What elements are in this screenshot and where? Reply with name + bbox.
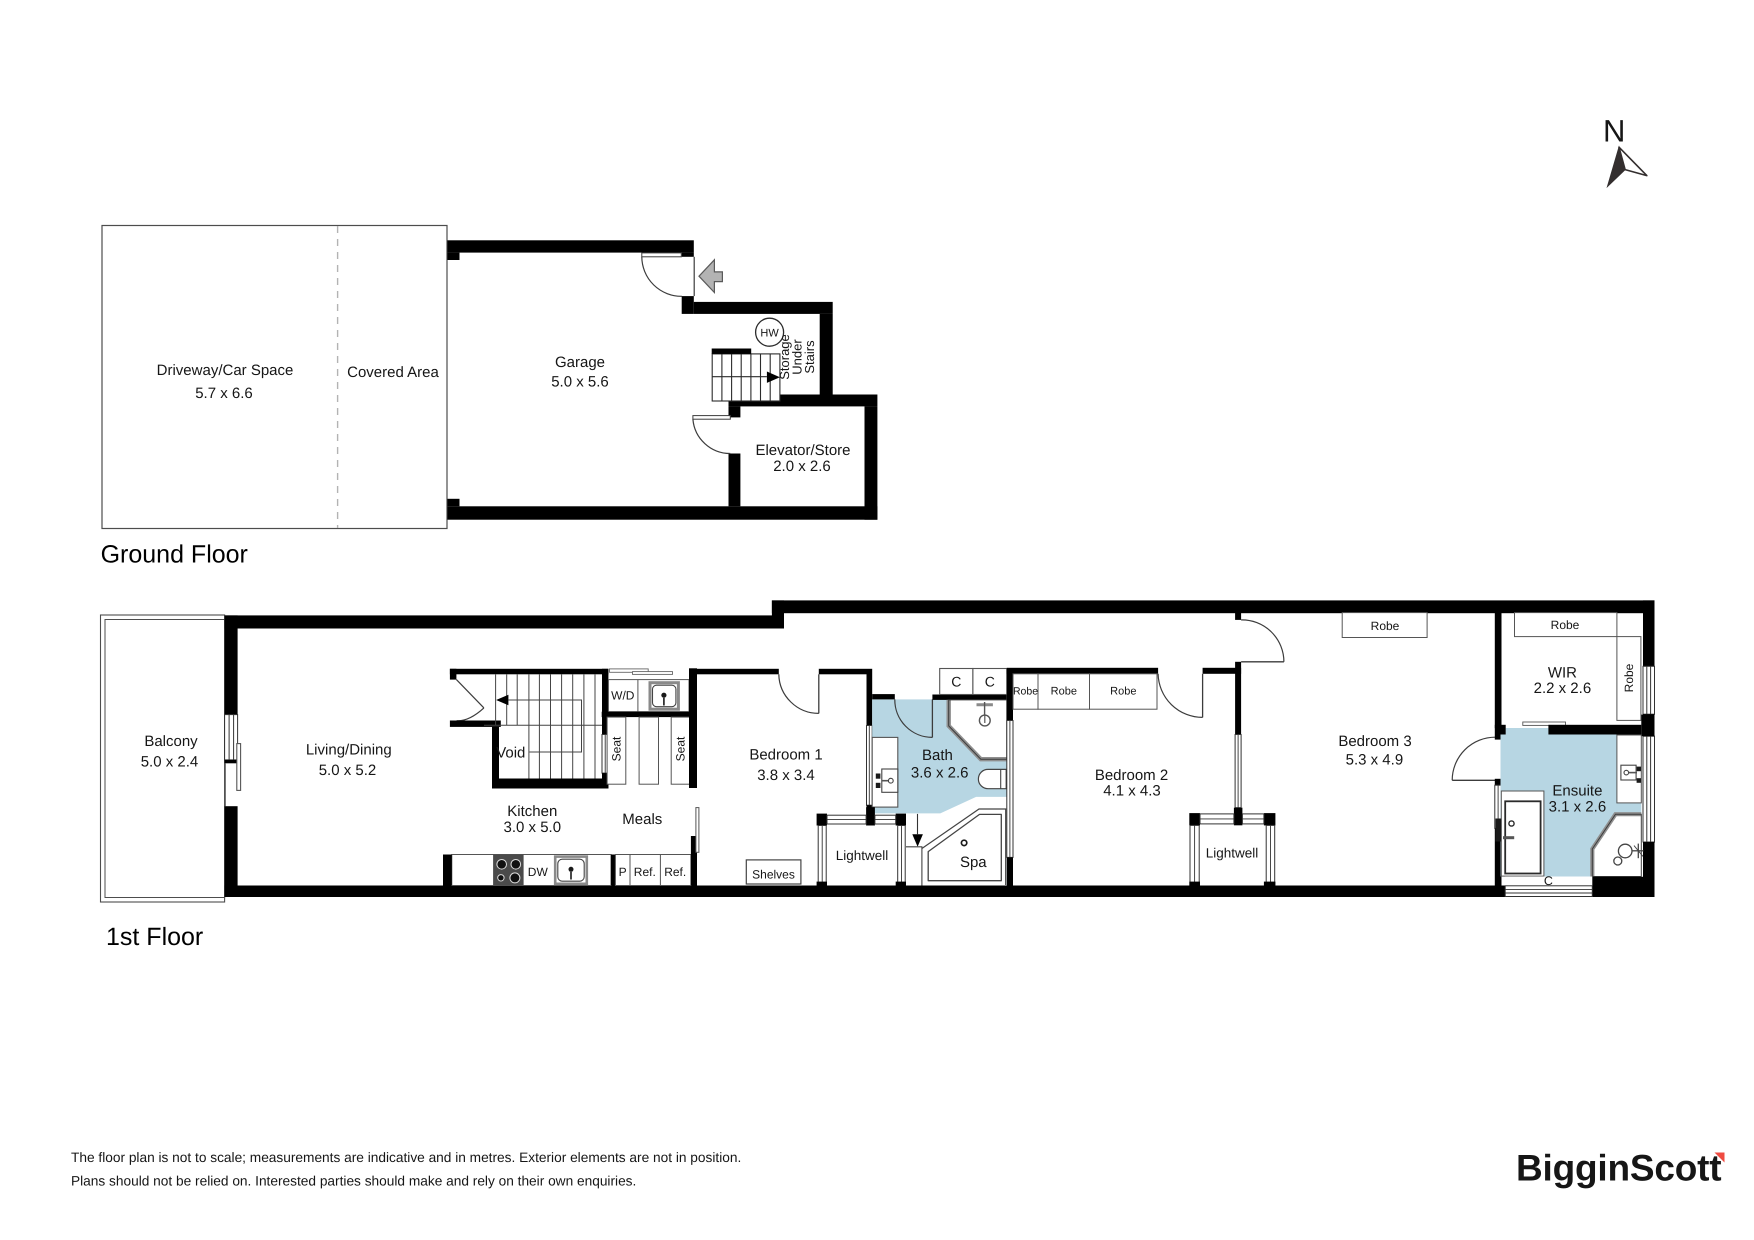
- svg-text:Driveway/Car Space: Driveway/Car Space: [157, 362, 294, 379]
- svg-text:Kitchen: Kitchen: [507, 803, 557, 820]
- svg-text:4.1 x 4.3: 4.1 x 4.3: [1103, 783, 1161, 800]
- svg-text:Robe: Robe: [1622, 663, 1636, 692]
- svg-text:Living/Dining: Living/Dining: [306, 742, 392, 759]
- svg-text:3.6 x 2.6: 3.6 x 2.6: [911, 764, 969, 781]
- svg-text:5.3 x 4.9: 5.3 x 4.9: [1346, 752, 1404, 769]
- svg-text:The floor plan is not to scale: The floor plan is not to scale; measurem…: [71, 1150, 741, 1165]
- svg-text:5.0 x 5.6: 5.0 x 5.6: [551, 374, 609, 391]
- svg-text:Lightwell: Lightwell: [1206, 846, 1259, 861]
- svg-text:Ground Floor: Ground Floor: [101, 541, 248, 569]
- svg-text:W/D: W/D: [611, 688, 635, 702]
- svg-text:Bath: Bath: [922, 747, 953, 764]
- svg-text:DW: DW: [528, 865, 549, 879]
- svg-text:N: N: [1603, 114, 1625, 149]
- svg-text:Meals: Meals: [622, 811, 662, 828]
- svg-text:Elevator/Store: Elevator/Store: [755, 442, 850, 459]
- svg-text:Seat: Seat: [610, 736, 624, 761]
- svg-text:Robe: Robe: [1551, 618, 1580, 632]
- svg-text:Robe: Robe: [1371, 619, 1400, 633]
- svg-text:2.0 x 2.6: 2.0 x 2.6: [773, 458, 831, 475]
- svg-text:5.0 x 5.2: 5.0 x 5.2: [319, 762, 377, 779]
- svg-text:Robe: Robe: [1051, 686, 1077, 698]
- svg-text:Spa: Spa: [960, 854, 987, 871]
- svg-text:Robe: Robe: [1110, 686, 1136, 698]
- svg-text:3.1 x 2.6: 3.1 x 2.6: [1549, 799, 1607, 816]
- svg-text:3.8 x 3.4: 3.8 x 3.4: [757, 767, 815, 784]
- svg-text:Robe: Robe: [1013, 686, 1038, 698]
- svg-text:Void: Void: [496, 745, 525, 762]
- svg-text:Seat: Seat: [674, 736, 688, 761]
- svg-text:Stairs: Stairs: [802, 340, 817, 374]
- svg-text:Balcony: Balcony: [144, 733, 198, 750]
- svg-text:C: C: [951, 673, 961, 689]
- svg-text:Ref.: Ref.: [664, 865, 686, 879]
- svg-text:C: C: [985, 673, 995, 689]
- svg-text:Covered Area: Covered Area: [347, 364, 439, 381]
- svg-text:5.0 x 2.4: 5.0 x 2.4: [141, 754, 199, 771]
- svg-text:Bedroom 2: Bedroom 2: [1095, 767, 1168, 784]
- svg-text:2.2 x 2.6: 2.2 x 2.6: [1534, 680, 1592, 697]
- svg-text:Lightwell: Lightwell: [836, 848, 889, 863]
- svg-text:Plans should not be relied on.: Plans should not be relied on. Intereste…: [71, 1174, 636, 1189]
- svg-text:Garage: Garage: [555, 354, 605, 371]
- svg-text:BigginScott: BigginScott: [1516, 1148, 1721, 1189]
- svg-text:3.0 x 5.0: 3.0 x 5.0: [504, 819, 562, 836]
- svg-text:Bedroom 1: Bedroom 1: [749, 747, 822, 764]
- svg-text:WIR: WIR: [1548, 665, 1577, 682]
- svg-text:Ensuite: Ensuite: [1552, 783, 1602, 800]
- svg-text:1st Floor: 1st Floor: [106, 923, 203, 951]
- svg-text:Ref.: Ref.: [634, 865, 656, 879]
- svg-text:Bedroom 3: Bedroom 3: [1338, 733, 1411, 750]
- svg-text:Shelves: Shelves: [752, 867, 795, 881]
- svg-text:P: P: [619, 865, 627, 879]
- svg-text:5.7 x 6.6: 5.7 x 6.6: [195, 385, 253, 402]
